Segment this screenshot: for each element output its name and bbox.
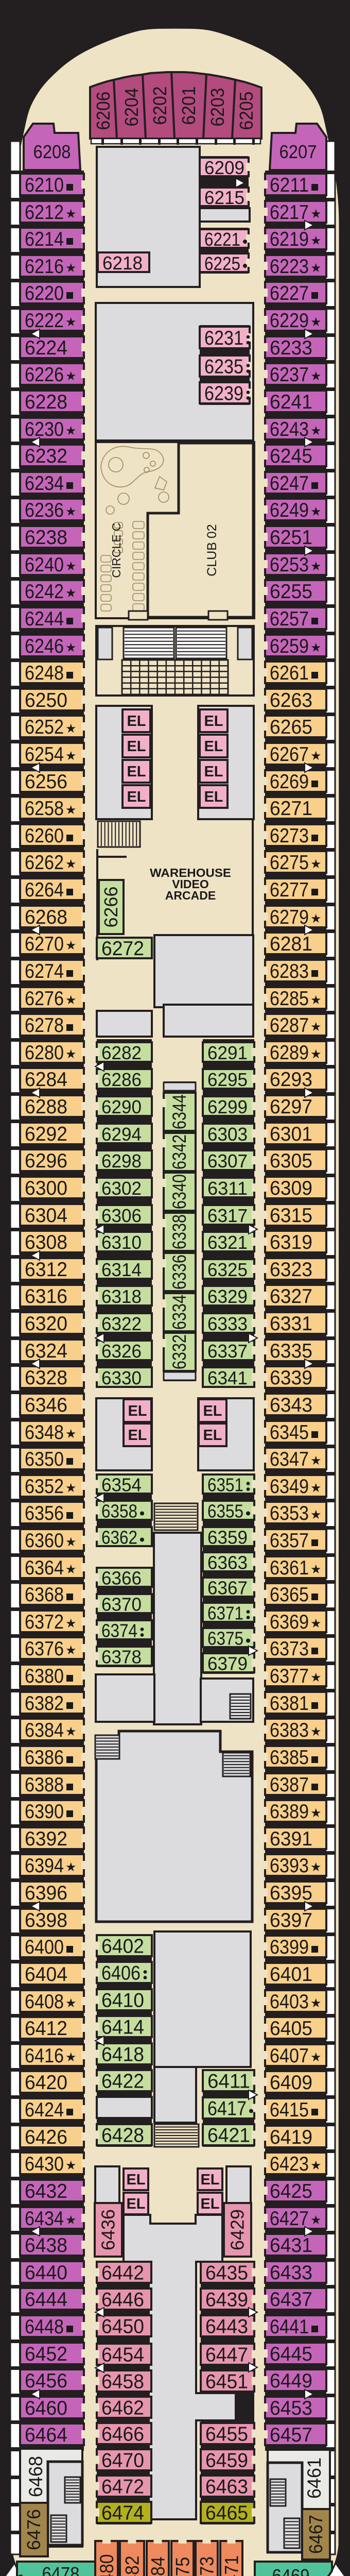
svg-text:6368: 6368 (25, 1584, 64, 1606)
svg-text:★: ★ (65, 1617, 77, 1631)
svg-text:6276: 6276 (25, 988, 64, 1010)
svg-text:6298: 6298 (101, 1150, 142, 1172)
svg-text:6310: 6310 (101, 1232, 142, 1253)
svg-text:6268: 6268 (25, 906, 67, 928)
svg-text:★: ★ (310, 1481, 322, 1495)
svg-text:6338: 6338 (169, 1214, 190, 1249)
svg-text:6278: 6278 (25, 1014, 64, 1037)
svg-text:6211: 6211 (270, 174, 309, 196)
svg-text:6404: 6404 (25, 1963, 67, 1986)
svg-text:6423: 6423 (270, 2153, 309, 2175)
svg-text:6383: 6383 (270, 1719, 309, 1741)
svg-text:6210: 6210 (25, 174, 64, 196)
svg-text:6245: 6245 (270, 445, 312, 467)
svg-text:★: ★ (65, 641, 77, 655)
svg-text:6437: 6437 (270, 2289, 312, 2311)
svg-text:6389: 6389 (270, 1801, 309, 1823)
svg-text:6343: 6343 (270, 1394, 312, 1416)
svg-text:ARCADE: ARCADE (165, 889, 216, 902)
svg-text:6395: 6395 (270, 1882, 312, 1904)
svg-text:★: ★ (65, 560, 77, 573)
svg-text:6349: 6349 (270, 1476, 309, 1498)
svg-text:★: ★ (310, 1806, 322, 1820)
svg-text:6303: 6303 (207, 1124, 248, 1145)
svg-text:6214: 6214 (25, 228, 64, 250)
svg-text:6255: 6255 (270, 581, 312, 603)
svg-text:★: ★ (65, 939, 77, 953)
svg-text:★: ★ (310, 1671, 322, 1685)
svg-text:6445: 6445 (270, 2343, 312, 2365)
svg-text:6329: 6329 (207, 1286, 248, 1307)
svg-text:6409: 6409 (270, 2072, 312, 2094)
svg-text:6307: 6307 (207, 1150, 248, 1172)
svg-text:6220: 6220 (25, 282, 64, 304)
svg-text:6355: 6355 (207, 1501, 243, 1522)
svg-text:★: ★ (65, 1643, 77, 1657)
svg-text:6433: 6433 (270, 2262, 312, 2284)
svg-text:6393: 6393 (270, 1855, 309, 1877)
svg-text:6309: 6309 (270, 1177, 312, 1199)
svg-text:6417: 6417 (207, 2098, 247, 2120)
svg-text:6218: 6218 (102, 252, 143, 274)
svg-text:6324: 6324 (25, 1340, 67, 1362)
svg-text:6396: 6396 (25, 1882, 67, 1904)
svg-text:6219: 6219 (270, 228, 309, 250)
svg-text:6373: 6373 (270, 1638, 309, 1660)
svg-text:6302: 6302 (101, 1178, 142, 1199)
svg-text:6446: 6446 (101, 2289, 144, 2311)
svg-text:6412: 6412 (25, 2018, 67, 2040)
svg-text:6249: 6249 (270, 499, 309, 521)
svg-text:6339: 6339 (270, 1367, 312, 1389)
svg-text:EL: EL (127, 738, 146, 755)
svg-text:★: ★ (310, 1020, 322, 1034)
svg-text:★: ★ (310, 315, 322, 329)
svg-text:6403: 6403 (270, 1991, 309, 2013)
svg-text:6450: 6450 (101, 2316, 144, 2338)
svg-text:6283: 6283 (270, 960, 309, 982)
svg-text:6431: 6431 (270, 2234, 312, 2257)
svg-text:6295: 6295 (207, 1069, 248, 1090)
svg-text:6482: 6482 (122, 2556, 143, 2576)
svg-text:6402: 6402 (101, 1936, 144, 1958)
svg-text:6246: 6246 (25, 635, 64, 657)
svg-text:6284: 6284 (25, 1069, 67, 1091)
svg-text:6415: 6415 (270, 2099, 309, 2121)
svg-text:6436: 6436 (98, 2209, 119, 2250)
svg-text:6418: 6418 (101, 2044, 144, 2066)
svg-text:6334: 6334 (169, 1295, 190, 1330)
svg-text:6299: 6299 (207, 1096, 248, 1117)
svg-text:6405: 6405 (270, 2018, 312, 2040)
svg-text:6253: 6253 (270, 554, 309, 576)
svg-text:6204: 6204 (121, 88, 142, 127)
svg-text:6466: 6466 (101, 2424, 144, 2446)
svg-text:6229: 6229 (270, 310, 309, 332)
svg-text:6375: 6375 (207, 1628, 243, 1649)
svg-text:6250: 6250 (25, 689, 67, 711)
svg-text:6390: 6390 (25, 1801, 64, 1823)
svg-text:★: ★ (310, 1725, 322, 1739)
svg-text:6252: 6252 (25, 716, 64, 738)
svg-text:6300: 6300 (25, 1177, 67, 1199)
svg-text:6430: 6430 (25, 2153, 64, 2175)
svg-text:6400: 6400 (25, 1936, 64, 1958)
svg-text:6224: 6224 (25, 337, 67, 359)
svg-text:6217: 6217 (270, 201, 309, 224)
svg-text:6282: 6282 (101, 1042, 142, 1063)
svg-text:6289: 6289 (270, 1042, 309, 1064)
svg-text:6443: 6443 (205, 2316, 248, 2338)
svg-text:6456: 6456 (25, 2370, 67, 2392)
svg-text:6388: 6388 (25, 1774, 64, 1796)
svg-text:★: ★ (65, 722, 77, 736)
svg-text:6384: 6384 (25, 1719, 64, 1741)
svg-text:6362: 6362 (101, 1527, 137, 1548)
svg-text:6306: 6306 (101, 1205, 142, 1226)
svg-text:★: ★ (310, 2159, 322, 2173)
svg-text:★: ★ (310, 1860, 322, 1874)
svg-text:★: ★ (310, 234, 322, 248)
svg-text:6359: 6359 (207, 1527, 248, 1548)
svg-text:6407: 6407 (270, 2045, 309, 2067)
svg-text:6360: 6360 (25, 1530, 64, 1552)
svg-text:6357: 6357 (270, 1530, 309, 1552)
svg-text:★: ★ (310, 207, 322, 221)
svg-text:6308: 6308 (25, 1231, 67, 1253)
svg-text:★: ★ (65, 1535, 77, 1549)
svg-text:★: ★ (65, 1427, 77, 1441)
svg-text:6484: 6484 (148, 2557, 169, 2576)
svg-text:6293: 6293 (270, 1069, 312, 1091)
svg-text:CLUB 02: CLUB 02 (205, 524, 219, 576)
svg-text:6452: 6452 (25, 2343, 67, 2365)
svg-text:6365: 6365 (270, 1584, 309, 1606)
svg-text:★: ★ (310, 424, 322, 438)
svg-text:6305: 6305 (270, 1150, 312, 1172)
svg-text:6322: 6322 (101, 1313, 142, 1334)
svg-text:6376: 6376 (25, 1638, 64, 1660)
svg-text:6408: 6408 (25, 1991, 64, 2013)
svg-text:6212: 6212 (25, 201, 64, 224)
svg-text:★: ★ (310, 1454, 322, 1468)
svg-text:6363: 6363 (207, 1552, 248, 1573)
svg-text:6323: 6323 (270, 1259, 312, 1281)
svg-text:6469: 6469 (272, 2565, 310, 2576)
svg-text:6354: 6354 (101, 1475, 142, 1496)
svg-text:★: ★ (65, 424, 77, 438)
svg-text:6471: 6471 (221, 2555, 242, 2576)
svg-text:6416: 6416 (25, 2045, 64, 2067)
svg-text:6398: 6398 (25, 1909, 67, 1931)
svg-text:EL: EL (200, 2172, 219, 2188)
svg-text:6385: 6385 (270, 1747, 309, 1769)
svg-text:6330: 6330 (101, 1367, 142, 1388)
svg-text:6256: 6256 (25, 771, 67, 793)
svg-text:6476: 6476 (23, 2509, 44, 2550)
svg-text:6318: 6318 (101, 1286, 142, 1307)
svg-text:★: ★ (65, 315, 77, 329)
svg-text:6346: 6346 (25, 1394, 67, 1416)
svg-text:6386: 6386 (25, 1747, 64, 1769)
svg-text:6366: 6366 (101, 1568, 142, 1589)
svg-text:6341: 6341 (207, 1367, 248, 1388)
svg-text:EL: EL (126, 2196, 145, 2212)
svg-text:6292: 6292 (25, 1123, 67, 1145)
svg-text:6263: 6263 (270, 689, 312, 711)
svg-text:6345: 6345 (270, 1421, 309, 1444)
svg-text:6380: 6380 (25, 1665, 64, 1687)
svg-text:★: ★ (65, 586, 77, 600)
svg-text:6301: 6301 (270, 1123, 312, 1145)
svg-text:6269: 6269 (270, 771, 309, 793)
svg-text:6241: 6241 (270, 391, 312, 413)
svg-text:6228: 6228 (25, 391, 67, 413)
svg-text:6458: 6458 (101, 2371, 144, 2393)
svg-text:6280: 6280 (25, 1042, 64, 1064)
svg-text:6337: 6337 (207, 1341, 248, 1362)
svg-text:6473: 6473 (197, 2556, 218, 2576)
svg-text:6226: 6226 (25, 364, 64, 386)
svg-text:6331: 6331 (270, 1313, 312, 1335)
svg-text:6377: 6377 (270, 1665, 309, 1687)
svg-text:EL: EL (127, 713, 146, 730)
svg-text:★: ★ (65, 2159, 77, 2173)
svg-text:6297: 6297 (270, 1096, 312, 1118)
svg-text:6381: 6381 (270, 1692, 309, 1715)
svg-text:6454: 6454 (101, 2344, 144, 2366)
svg-text:6464: 6464 (25, 2424, 67, 2446)
svg-text:6274: 6274 (25, 960, 64, 982)
svg-text:★: ★ (310, 505, 322, 519)
svg-text:6472: 6472 (101, 2476, 144, 2498)
svg-text:★: ★ (65, 993, 77, 1007)
svg-text:6239: 6239 (204, 383, 243, 405)
svg-text:6223: 6223 (270, 256, 309, 278)
svg-text:6397: 6397 (270, 1909, 312, 1931)
svg-text:6235: 6235 (204, 356, 243, 378)
svg-text:EL: EL (203, 1427, 222, 1444)
svg-text:6480: 6480 (96, 2554, 117, 2576)
svg-text:EL: EL (200, 2196, 219, 2212)
svg-text:6205: 6205 (236, 92, 257, 130)
svg-text:★: ★ (310, 560, 322, 573)
svg-text:6290: 6290 (101, 1096, 142, 1117)
svg-text:6225: 6225 (204, 253, 240, 274)
svg-text:6391: 6391 (270, 1828, 312, 1850)
svg-text:6215: 6215 (204, 187, 244, 208)
svg-text:6261: 6261 (270, 662, 309, 684)
svg-text:EL: EL (128, 1403, 147, 1419)
svg-text:6410: 6410 (101, 1990, 144, 2012)
svg-text:6399: 6399 (270, 1936, 309, 1958)
svg-text:6247: 6247 (270, 472, 309, 495)
svg-text:6435: 6435 (205, 2262, 248, 2284)
svg-text:6296: 6296 (25, 1150, 67, 1172)
svg-text:6314: 6314 (101, 1259, 142, 1280)
svg-text:6317: 6317 (207, 1205, 248, 1226)
svg-text:6335: 6335 (270, 1340, 312, 1362)
svg-text:6453: 6453 (270, 2397, 312, 2419)
svg-text:6326: 6326 (101, 1341, 142, 1362)
svg-text:6209: 6209 (204, 157, 244, 178)
svg-text:6432: 6432 (25, 2180, 67, 2202)
svg-text:6451: 6451 (205, 2371, 248, 2393)
svg-text:6465: 6465 (205, 2502, 248, 2524)
svg-text:★: ★ (65, 749, 77, 763)
svg-text:★: ★ (310, 1047, 322, 1061)
svg-text:6428: 6428 (101, 2125, 144, 2147)
svg-text:6288: 6288 (25, 1096, 67, 1118)
svg-text:6394: 6394 (25, 1855, 64, 1877)
svg-text:6244: 6244 (25, 608, 64, 630)
svg-text:6440: 6440 (25, 2262, 67, 2284)
svg-text:6468: 6468 (25, 2456, 46, 2497)
svg-text:★: ★ (310, 2213, 322, 2227)
svg-text:EL: EL (203, 1403, 222, 1419)
svg-text:6287: 6287 (270, 1014, 309, 1037)
svg-text:6311: 6311 (207, 1178, 248, 1199)
svg-text:6392: 6392 (25, 1828, 67, 1850)
svg-text:6414: 6414 (101, 2016, 144, 2039)
svg-text:6264: 6264 (25, 879, 64, 901)
svg-text:6442: 6442 (101, 2262, 144, 2284)
svg-text:6248: 6248 (25, 662, 64, 684)
svg-text:★: ★ (65, 261, 77, 275)
svg-text:6319: 6319 (270, 1231, 312, 1253)
svg-text:★: ★ (65, 1047, 77, 1061)
svg-text:EL: EL (128, 1427, 147, 1444)
svg-text:6259: 6259 (270, 635, 309, 657)
svg-text:EL: EL (204, 713, 223, 730)
svg-text:6367: 6367 (207, 1578, 248, 1599)
svg-text:6243: 6243 (270, 418, 309, 440)
svg-text:★: ★ (65, 1563, 77, 1577)
svg-text:6352: 6352 (25, 1476, 64, 1498)
svg-text:★: ★ (65, 1725, 77, 1739)
svg-text:6320: 6320 (25, 1313, 67, 1335)
svg-text:6286: 6286 (101, 1069, 142, 1090)
svg-text:EL: EL (127, 764, 146, 780)
svg-text:6294: 6294 (101, 1124, 142, 1145)
svg-text:6424: 6424 (25, 2099, 64, 2121)
svg-text:6382: 6382 (25, 1692, 64, 1715)
svg-text:6478: 6478 (42, 2563, 80, 2576)
svg-text:6207: 6207 (279, 141, 317, 162)
svg-text:6461: 6461 (304, 2458, 325, 2499)
svg-text:6356: 6356 (25, 1502, 64, 1524)
svg-text:6227: 6227 (270, 282, 309, 304)
svg-text:6467: 6467 (305, 2515, 326, 2554)
svg-text:★: ★ (310, 641, 322, 655)
svg-text:6262: 6262 (25, 852, 64, 874)
svg-text:6327: 6327 (270, 1285, 312, 1308)
svg-text:6455: 6455 (205, 2424, 248, 2446)
svg-text:★: ★ (65, 2213, 77, 2227)
svg-text:6457: 6457 (270, 2424, 312, 2446)
svg-text:★: ★ (310, 2050, 322, 2064)
svg-text:6325: 6325 (207, 1259, 248, 1280)
svg-text:6351: 6351 (207, 1475, 243, 1496)
svg-text:6342: 6342 (169, 1134, 190, 1170)
svg-text:6285: 6285 (270, 988, 309, 1010)
svg-text:★: ★ (65, 803, 77, 817)
svg-text:6206: 6206 (93, 92, 114, 130)
svg-text:6370: 6370 (101, 1594, 142, 1615)
svg-text:EL: EL (204, 789, 223, 805)
svg-text:6447: 6447 (205, 2344, 248, 2366)
svg-text:6441: 6441 (270, 2316, 309, 2338)
svg-text:6275: 6275 (270, 852, 309, 874)
svg-text:6401: 6401 (270, 1963, 312, 1986)
svg-text:★: ★ (65, 2050, 77, 2064)
svg-text:EL: EL (204, 738, 223, 755)
svg-text:6277: 6277 (270, 879, 309, 901)
svg-text:EL: EL (126, 2172, 145, 2188)
svg-text:6279: 6279 (270, 906, 309, 928)
svg-text:6438: 6438 (25, 2234, 67, 2257)
svg-text:CIRCLE C: CIRCLE C (110, 522, 123, 578)
svg-text:6201: 6201 (178, 87, 199, 125)
svg-text:6348: 6348 (25, 1421, 64, 1444)
svg-text:★: ★ (310, 1996, 322, 2010)
svg-text:★: ★ (310, 1563, 322, 1577)
svg-text:6439: 6439 (205, 2289, 248, 2311)
svg-text:6434: 6434 (25, 2208, 64, 2230)
svg-text:6321: 6321 (207, 1232, 248, 1253)
svg-text:6216: 6216 (25, 256, 64, 278)
svg-text:6257: 6257 (270, 608, 309, 630)
svg-text:6251: 6251 (270, 527, 312, 549)
svg-text:★: ★ (310, 1617, 322, 1631)
svg-text:6333: 6333 (207, 1313, 248, 1334)
svg-text:6379: 6379 (207, 1653, 248, 1674)
svg-text:6260: 6260 (25, 825, 64, 847)
svg-text:6238: 6238 (25, 527, 67, 549)
svg-text:6336: 6336 (169, 1255, 190, 1290)
svg-text:6449: 6449 (270, 2370, 312, 2392)
svg-text:6258: 6258 (25, 798, 64, 820)
svg-text:6350: 6350 (25, 1448, 64, 1470)
svg-text:6470: 6470 (101, 2450, 144, 2472)
svg-text:6459: 6459 (205, 2450, 248, 2472)
svg-text:6221: 6221 (204, 229, 240, 250)
svg-text:6358: 6358 (101, 1501, 137, 1522)
svg-text:★: ★ (65, 207, 77, 221)
svg-text:6429: 6429 (227, 2209, 248, 2250)
svg-text:6422: 6422 (101, 2071, 144, 2093)
svg-text:6369: 6369 (270, 1611, 309, 1633)
svg-text:6230: 6230 (25, 418, 64, 440)
svg-text:6463: 6463 (205, 2476, 248, 2498)
svg-text:★: ★ (310, 912, 322, 926)
svg-text:6328: 6328 (25, 1367, 67, 1389)
svg-text:6270: 6270 (25, 933, 64, 955)
svg-text:6272: 6272 (101, 938, 144, 960)
svg-text:6231: 6231 (204, 327, 243, 349)
svg-text:6332: 6332 (169, 1334, 190, 1369)
svg-text:6411: 6411 (207, 2071, 250, 2093)
svg-text:6387: 6387 (270, 1774, 309, 1796)
svg-text:6347: 6347 (270, 1448, 309, 1470)
svg-text:6273: 6273 (270, 825, 309, 847)
svg-text:6281: 6281 (270, 933, 312, 955)
svg-text:6242: 6242 (25, 581, 64, 603)
svg-text:6475: 6475 (172, 2557, 194, 2576)
svg-text:6426: 6426 (25, 2126, 67, 2148)
svg-text:6208: 6208 (33, 141, 71, 162)
svg-text:6237: 6237 (270, 364, 309, 386)
